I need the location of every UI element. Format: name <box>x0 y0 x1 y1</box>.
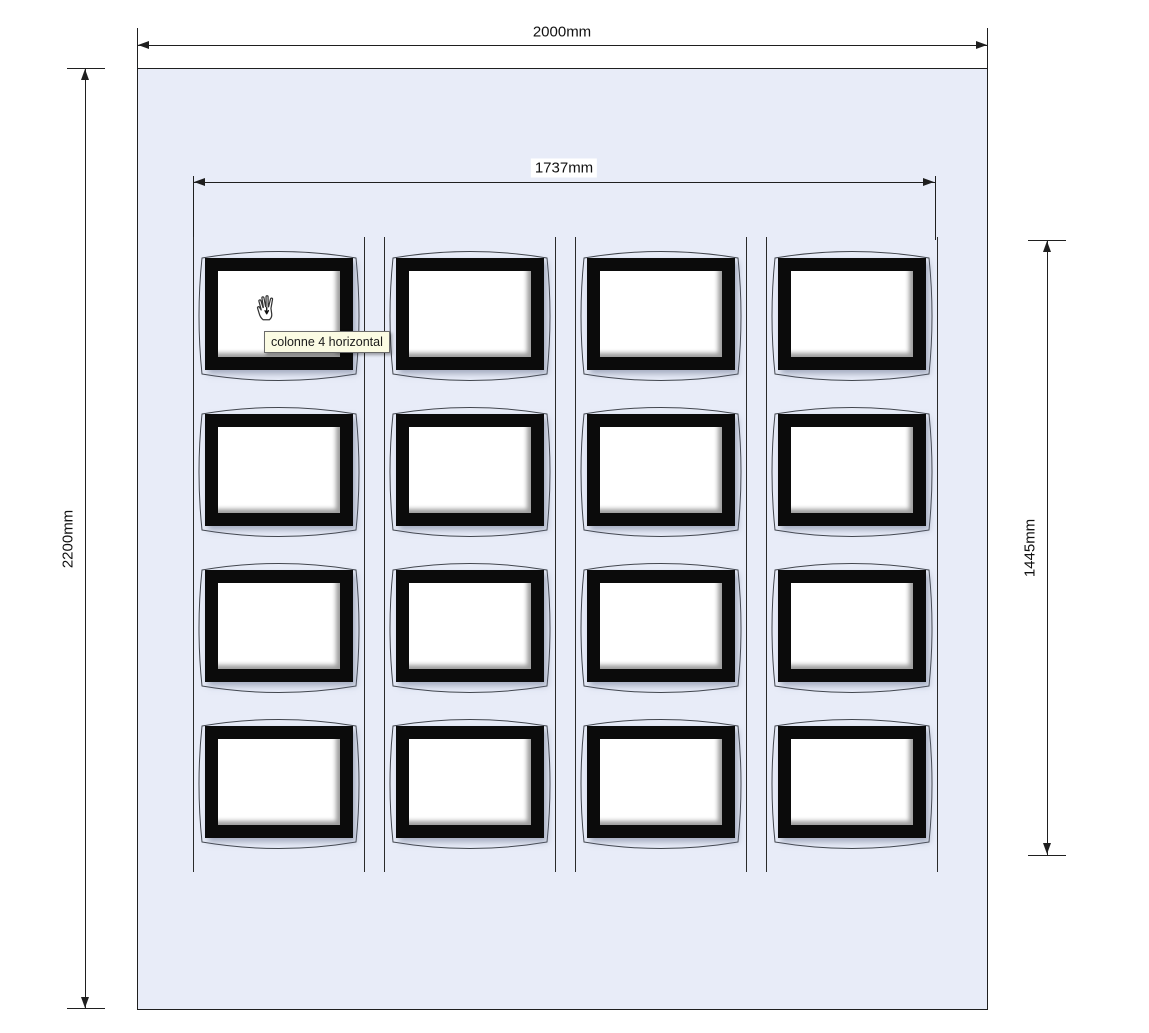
frame-cell-r3-c2[interactable] <box>385 554 555 702</box>
poster-panel <box>409 427 531 513</box>
poster-panel <box>409 583 531 669</box>
poster-panel <box>600 739 722 825</box>
frame-grid <box>0 0 1149 1033</box>
poster-panel <box>409 739 531 825</box>
poster-panel <box>791 739 913 825</box>
poster-frame <box>205 726 353 838</box>
design-canvas[interactable]: 2000mm 2200mm 1737mm 1445mm colonne 4 ho… <box>0 0 1149 1033</box>
frame-cell-r2-c1[interactable] <box>194 398 364 546</box>
poster-panel <box>409 271 531 357</box>
frame-cell-r4-c2[interactable] <box>385 710 555 858</box>
poster-panel <box>218 427 340 513</box>
poster-frame <box>396 726 544 838</box>
poster-frame <box>205 414 353 526</box>
frame-cell-r4-c4[interactable] <box>767 710 937 858</box>
poster-frame <box>396 258 544 370</box>
frame-cell-r3-c1[interactable] <box>194 554 364 702</box>
poster-frame <box>778 258 926 370</box>
poster-frame <box>778 726 926 838</box>
poster-frame <box>396 414 544 526</box>
pan-hand-cursor <box>255 293 282 327</box>
poster-frame <box>587 570 735 682</box>
frame-cell-r1-c3[interactable] <box>576 242 746 390</box>
frame-cell-r2-c4[interactable] <box>767 398 937 546</box>
poster-frame <box>587 726 735 838</box>
poster-panel <box>218 739 340 825</box>
poster-panel <box>600 427 722 513</box>
poster-frame <box>778 414 926 526</box>
column-4 <box>766 237 938 872</box>
poster-frame <box>778 570 926 682</box>
poster-panel <box>791 271 913 357</box>
frame-cell-r2-c2[interactable] <box>385 398 555 546</box>
frame-cell-r4-c1[interactable] <box>194 710 364 858</box>
poster-panel <box>600 271 722 357</box>
frame-cell-r1-c4[interactable] <box>767 242 937 390</box>
poster-frame <box>587 258 735 370</box>
tooltip: colonne 4 horizontal <box>264 331 390 353</box>
poster-panel <box>600 583 722 669</box>
frame-cell-r3-c4[interactable] <box>767 554 937 702</box>
poster-frame <box>587 414 735 526</box>
frame-cell-r2-c3[interactable] <box>576 398 746 546</box>
column-2 <box>384 237 556 872</box>
poster-panel <box>791 427 913 513</box>
frame-cell-r1-c2[interactable] <box>385 242 555 390</box>
poster-frame <box>396 570 544 682</box>
poster-panel <box>218 583 340 669</box>
poster-frame <box>205 570 353 682</box>
frame-cell-r4-c3[interactable] <box>576 710 746 858</box>
poster-panel <box>791 583 913 669</box>
frame-cell-r3-c3[interactable] <box>576 554 746 702</box>
column-3 <box>575 237 747 872</box>
